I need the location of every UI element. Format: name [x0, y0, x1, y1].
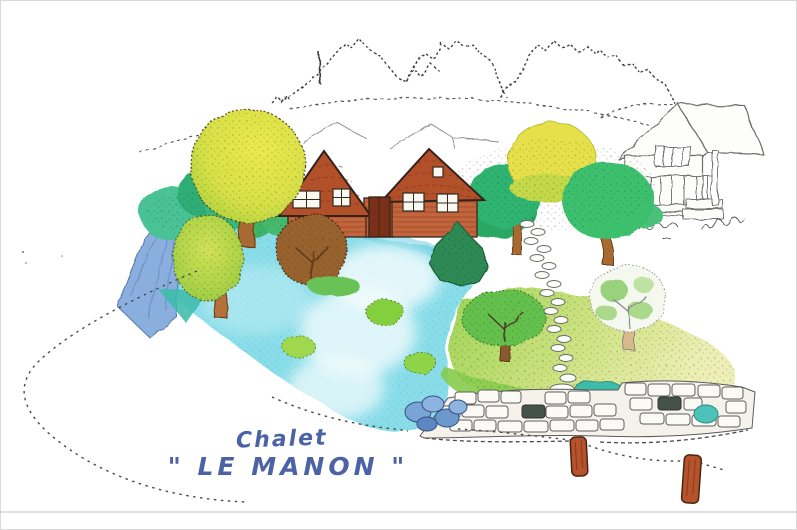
wall-teal-patch — [694, 405, 718, 423]
mountain-tick — [319, 52, 320, 84]
pond-shrub — [404, 352, 436, 374]
fence-post — [681, 454, 701, 503]
pond-shrub — [366, 299, 404, 325]
green-tuft — [308, 276, 360, 296]
fence-post — [570, 437, 588, 477]
attic-window — [433, 167, 443, 177]
illustration-canvas: Chalet " LE MANON " — [0, 0, 797, 530]
house-post — [712, 150, 718, 205]
wall-dark-stone — [658, 397, 681, 410]
house-step-2 — [683, 209, 723, 219]
caption-line-2: " LE MANON " — [168, 452, 409, 481]
pond-shrub — [283, 336, 315, 358]
house-upper-window — [656, 146, 690, 167]
caption-line-1: Chalet — [236, 425, 328, 453]
wall-dark-stone — [522, 405, 545, 418]
